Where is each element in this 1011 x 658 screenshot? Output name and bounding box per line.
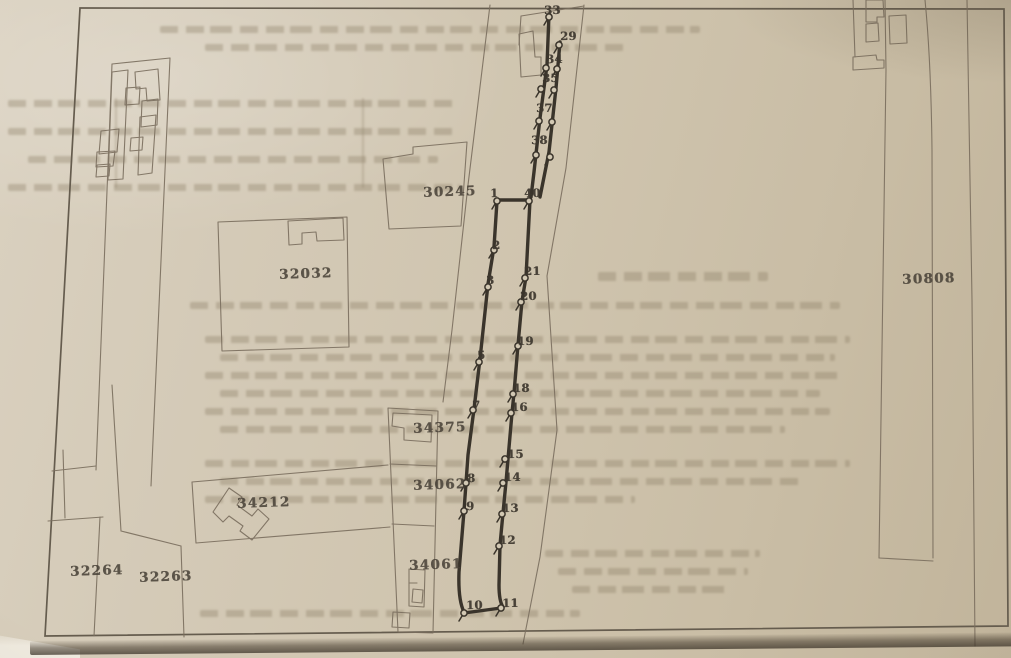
left-building-cluster xyxy=(52,58,170,486)
parcel-34212-outline xyxy=(192,465,390,543)
route-point-label-8: 8 xyxy=(467,471,476,485)
route-point-label-33: 33 xyxy=(544,3,561,17)
survey-node-circle xyxy=(551,87,557,93)
right-side-cluster xyxy=(853,0,975,646)
parcel-label-32264: 32264 xyxy=(70,562,124,580)
bottom-left-boundaries xyxy=(48,385,184,637)
route-point-label-3: 3 xyxy=(486,273,495,287)
survey-node-tick xyxy=(534,124,537,129)
route-point-label-29: 29 xyxy=(560,29,577,43)
survey-node-tick xyxy=(524,204,527,209)
route-point-label-21: 21 xyxy=(524,264,541,278)
route-point-label-16: 16 xyxy=(511,400,528,414)
survey-node-tick xyxy=(497,517,500,522)
route-point-label-7: 7 xyxy=(472,398,481,412)
route-point-label-5: 5 xyxy=(477,348,486,362)
route-point-label-35: 35 xyxy=(542,71,559,85)
central-building-block xyxy=(388,408,438,633)
route-point-label-12: 12 xyxy=(499,533,516,547)
parcel-label-32032: 32032 xyxy=(279,265,333,283)
route-point-label-11: 11 xyxy=(502,596,519,610)
survey-node-tick xyxy=(547,125,550,130)
survey-node-circle xyxy=(547,154,553,160)
parcel-32032-outline xyxy=(218,217,349,351)
route-point-label-10: 10 xyxy=(466,598,483,612)
survey-node-tick xyxy=(492,204,495,209)
survey-node-circle xyxy=(549,119,555,125)
route-point-label-15: 15 xyxy=(507,447,524,461)
survey-node-tick xyxy=(474,365,477,370)
route-point-label-14: 14 xyxy=(504,470,521,484)
parcel-label-34375: 34375 xyxy=(413,419,467,437)
parcel-label-30808: 30808 xyxy=(902,270,956,288)
survey-node-tick xyxy=(549,93,552,98)
survey-node-tick xyxy=(536,92,539,97)
survey-node-tick xyxy=(506,416,509,421)
parcel-outlines xyxy=(48,0,975,646)
route-point-label-9: 9 xyxy=(466,499,475,513)
survey-node-tick xyxy=(459,616,462,621)
central-road-edges xyxy=(443,5,584,644)
survey-node-circle xyxy=(538,86,544,92)
route-point-label-18: 18 xyxy=(513,381,530,395)
route-point-label-13: 13 xyxy=(502,501,519,515)
survey-node-tick xyxy=(544,20,547,25)
route-point-label-20: 20 xyxy=(520,289,537,303)
route-point-label-19: 19 xyxy=(517,334,534,348)
survey-node-tick xyxy=(468,413,471,418)
survey-node-tick xyxy=(520,281,523,286)
map-linework xyxy=(0,0,1011,658)
survey-node-tick xyxy=(513,349,516,354)
route-point-label-37: 37 xyxy=(536,101,553,115)
survey-node-circle xyxy=(536,118,542,124)
parcel-label-34062: 34062 xyxy=(413,476,467,494)
route-point-label-40: 40 xyxy=(524,186,541,200)
parcel-label-30245: 30245 xyxy=(423,183,477,201)
route-point-label-1: 1 xyxy=(490,186,499,200)
survey-node-tick xyxy=(500,462,503,467)
survey-node-circle xyxy=(533,152,539,158)
parcel-label-34061: 34061 xyxy=(409,556,463,574)
survey-node-tick xyxy=(494,549,497,554)
survey-node-tick xyxy=(496,611,499,616)
frame-border xyxy=(45,8,1008,636)
route-point-label-2: 2 xyxy=(492,238,501,252)
route-point-label-38: 38 xyxy=(531,133,548,147)
route-point-label-34: 34 xyxy=(546,52,563,66)
survey-node-tick xyxy=(459,514,462,519)
survey-node-tick xyxy=(498,486,501,491)
parcel-label-32263: 32263 xyxy=(139,568,193,586)
scanned-map-photo: 30245 32032 30808 34375 34062 34212 3226… xyxy=(0,0,1011,658)
survey-node-tick xyxy=(516,305,519,310)
parcel-label-34212: 34212 xyxy=(237,494,291,512)
